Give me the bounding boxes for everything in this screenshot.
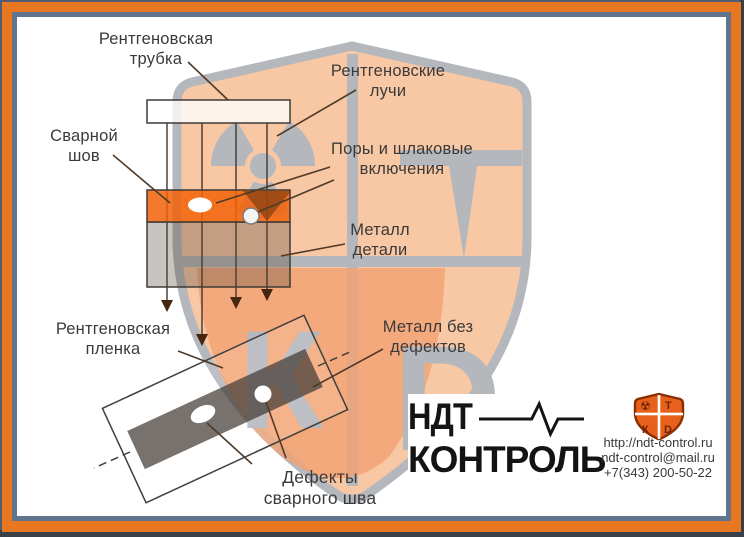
label-xray-tube: Рентгеновская трубка (71, 29, 241, 69)
infographic-radiographic-testing: К D (0, 0, 744, 537)
contact-email: ndt-control@mail.ru (574, 450, 742, 465)
label-weld-seam: Сварной шов (19, 126, 149, 166)
label-weld-defects: Дефекты сварного шва (220, 467, 420, 510)
ndt-kontrol-logo: НДТ КОНТРОЛЬ (408, 394, 584, 488)
logo-text-ndt: НДТ (408, 398, 472, 435)
film-inclusion-indication (255, 386, 272, 403)
label-part-metal: Металл детали (315, 220, 445, 260)
contact-info: http://ndt-control.ru ndt-control@mail.r… (574, 435, 742, 481)
label-pores-inclusions: Поры и шлаковые включения (307, 139, 497, 179)
icon-glyph-t: Т (665, 400, 672, 412)
icon-glyph-trefoil: ☢ (640, 399, 651, 413)
contact-website: http://ndt-control.ru (574, 435, 742, 450)
label-xray-film: Рентгеновская пленка (28, 319, 198, 359)
contact-phone: +7(343) 200-50-22 (574, 465, 742, 480)
label-metal-no-defects: Металл без дефектов (343, 317, 513, 357)
pore-defect (188, 198, 212, 213)
pulse-line-icon (479, 399, 584, 439)
slag-inclusion-defect (243, 208, 259, 224)
metal-block (147, 222, 290, 287)
xray-tube (147, 100, 290, 123)
label-xray-rays: Рентгеновские лучи (303, 61, 473, 101)
